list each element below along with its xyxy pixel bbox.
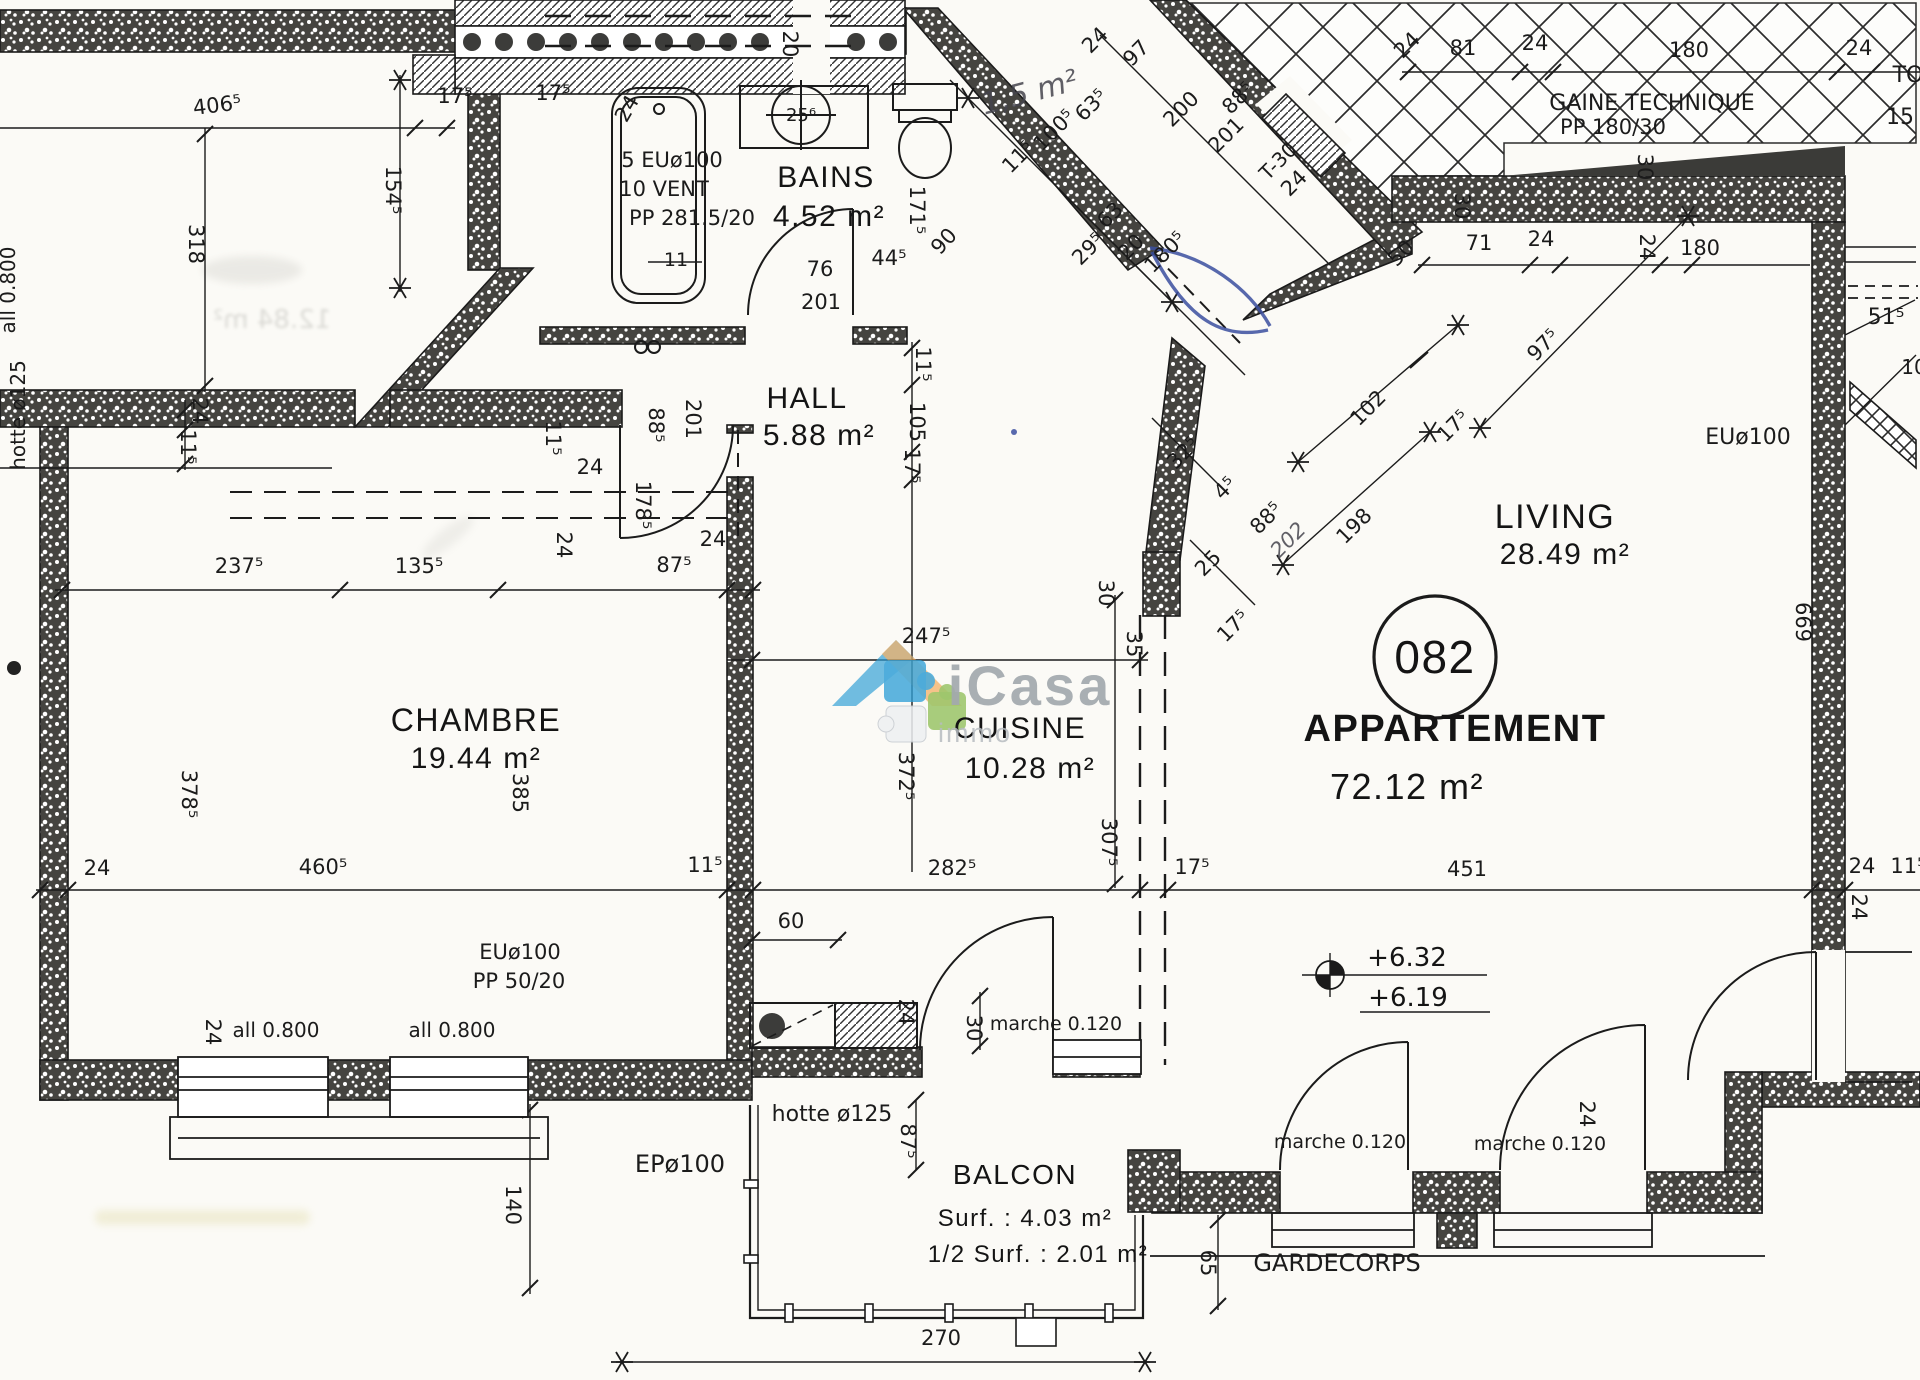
shaft-note: PP 281.5/20 [629, 206, 755, 230]
sill-height-label: all 0.800 [0, 247, 20, 334]
room-label-balcon: BALCON [953, 1159, 1077, 1190]
apartment-area: 72.12 m² [1330, 766, 1484, 807]
dimension-label: 24 [1849, 854, 1876, 878]
level-marker [1316, 961, 1344, 989]
watermark-suffix: immo [938, 718, 1012, 748]
dimension-label: 180 [1680, 236, 1720, 260]
dimension-label: 24 [1846, 36, 1873, 60]
dimension-label: 11 [664, 249, 688, 271]
room-label-hall: HALL [766, 382, 847, 415]
rainwater-pipe-label: EPø100 [635, 1150, 725, 1178]
dimension-label: 97⁵ [1522, 324, 1564, 366]
balcony-step [1016, 1318, 1056, 1346]
dimension-label: 97 [1118, 35, 1154, 71]
clipped-text: TO [1892, 63, 1920, 88]
pen-annotation-entry-door [1011, 248, 1270, 435]
dimension-label: 282⁵ [928, 856, 977, 880]
dimension-label: 44⁵ [871, 246, 906, 270]
dimension-label: 24 [84, 856, 111, 880]
dimension-label: 140 [501, 1185, 525, 1225]
drain-label: EUø100 [1705, 425, 1790, 450]
room-label-living: LIVING [1495, 498, 1615, 536]
dimension-label: 24 [1575, 1101, 1599, 1128]
dimension-label: 90 [926, 223, 962, 259]
dimension-label: 30 [1094, 580, 1118, 607]
step-label: marche 0.120 [1474, 1133, 1606, 1155]
dimension-label: 87⁵ [656, 553, 691, 577]
door-living-east [1688, 952, 1816, 1080]
step-label: marche 0.120 [1274, 1131, 1406, 1153]
dimension-label: 17⁵ [900, 448, 924, 483]
clipped-text: 15 [1886, 105, 1914, 130]
dimension-label: 198 [1331, 503, 1376, 548]
dimension-label: 4⁵ [1209, 472, 1241, 504]
dimension-label: 178⁵ [631, 481, 655, 530]
dimension-label: 17⁵ [1174, 855, 1209, 879]
dimension-label: 11⁵ [1890, 854, 1920, 878]
dimension-label: 451 [1447, 857, 1487, 881]
dimension-label: 460⁵ [299, 855, 348, 879]
doors [620, 209, 1816, 1170]
dimension-label: 171⁵ [905, 186, 929, 235]
dimension-label: 24 [552, 532, 576, 559]
shaft-label: PP 50/20 [473, 969, 566, 993]
dimension-label: 372⁵ [894, 752, 918, 801]
apartment-label: APPARTEMENT [1304, 708, 1607, 750]
dimension-label: 20 [778, 31, 802, 58]
dimension-label: 24 [1077, 22, 1113, 58]
dimension-label: 247⁵ [902, 624, 951, 648]
watermark-brand: iCasa [948, 654, 1112, 717]
level-lower: +6.19 [1368, 983, 1448, 1013]
clipped-dimension: 10 [1901, 355, 1920, 379]
dimension-label: 135⁵ [395, 554, 444, 578]
dimension-label: 669 [1791, 602, 1815, 642]
room-area-half-balcon: 1/2 Surf. : 2.01 m² [928, 1241, 1149, 1268]
sill-height-label: all 0.800 [409, 1018, 496, 1042]
room-area-hall: 5.88 m² [763, 419, 875, 452]
dimension-label: 406⁵ [192, 90, 243, 120]
room-area-chambre: 19.44 m² [411, 742, 541, 775]
dimension-label: 30 [1450, 193, 1474, 220]
dimension-label: 24 [188, 398, 212, 425]
dimension-label: 102 [1345, 385, 1390, 430]
dimension-label: 11⁵ [911, 346, 935, 381]
gaine-technique-label: GAINE TECHNIQUE [1549, 91, 1754, 116]
gaine-solid-wedge [1502, 146, 1845, 176]
dimension-label: 11⁵ [687, 853, 722, 877]
guardrail-label: GARDECORPS [1253, 1249, 1420, 1277]
level-upper: +6.32 [1367, 943, 1447, 973]
dimension-label: 30 [962, 1015, 986, 1042]
hood-duct-label: hotte ø125 [6, 360, 30, 470]
dimension-label: 11⁵ [176, 429, 200, 464]
dimension-label: 154⁵ [381, 166, 405, 215]
dimension-label: 17⁵ [1432, 405, 1474, 447]
floorplan-sheet: Plan d'étage — Appartement 082 [0, 0, 1920, 1380]
apartment-number: 082 [1394, 631, 1475, 683]
bathtub-drain [654, 104, 664, 114]
dimension-label: 24 [894, 999, 918, 1026]
dimension-label: 35 [1122, 631, 1146, 658]
dimension-label: 270 [921, 1326, 961, 1350]
dimension-label: 180 [1669, 38, 1709, 62]
dimension-label: 88⁵ [644, 407, 668, 442]
dimension-label: 60 [778, 909, 805, 933]
dimension-label: 378⁵ [177, 770, 201, 819]
sill-height-label: all 0.800 [233, 1018, 320, 1042]
dimension-label: 385 [508, 773, 532, 813]
duct-note: 5 EUø100 [621, 148, 723, 172]
dimension-label: 318 [184, 224, 208, 264]
bleed-through-text: 12.84 m² [213, 305, 331, 335]
dimension-label: 17⁵ [1212, 605, 1254, 647]
dimension-label: 200 [1158, 86, 1203, 131]
window-chambre-2 [390, 1057, 528, 1117]
dimension-label: 71 [1466, 231, 1493, 255]
floorplan-drawing: BAINS4.52 m²HALL5.88 m²CHAMBRE19.44 m²CU… [0, 0, 1920, 1380]
dimension-label: 24 [700, 527, 727, 551]
dimension-label: 105 [905, 402, 929, 442]
dimension-label: 201 [681, 399, 705, 439]
room-area-balcon: Surf. : 4.03 m² [938, 1205, 1113, 1232]
room-label-bains: BAINS [777, 161, 875, 194]
room-area-living: 28.49 m² [1500, 538, 1630, 571]
hood-duct-label: hotte ø125 [772, 1102, 893, 1127]
dimension-label: 87⁵ [896, 1123, 920, 1158]
dimension-label: 25 [1190, 545, 1226, 581]
dimension-label: 76 [807, 257, 834, 281]
dimension-label: 24 [1635, 234, 1659, 261]
wall-dot [7, 661, 21, 675]
dimension-label: 81 [1450, 36, 1477, 60]
dimension-label: 24 [1522, 31, 1549, 55]
dimension-label: 65 [1196, 1250, 1220, 1277]
window-chambre-1 [178, 1057, 328, 1117]
dimension-label: 17⁵ [437, 84, 472, 108]
dimension-label: 24 [201, 1019, 225, 1046]
basin-diameter: 25⁶ [786, 105, 816, 126]
room-area-bains: 4.52 m² [773, 200, 885, 233]
dimension-label: 24 [577, 455, 604, 479]
gaine-technique-size: PP 180/30 [1560, 115, 1666, 139]
dimension-label: 30 [1633, 154, 1657, 181]
shaft-hatch-strip [1850, 382, 1916, 468]
dimension-label: 237⁵ [215, 554, 264, 578]
drain-label: EUø100 [479, 940, 561, 964]
room-label-chambre: CHAMBRE [391, 702, 562, 738]
wc-bowl [899, 118, 951, 178]
dimension-label: 11⁵ [541, 420, 565, 455]
dimension-label: 24 [1528, 227, 1555, 251]
dimension-label: 17⁵ [535, 81, 570, 105]
dimension-label: 307⁵ [1097, 818, 1121, 867]
step-label: marche 0.120 [990, 1013, 1122, 1035]
dimension-label: 24 [1847, 894, 1871, 921]
room-area-cuisine: 10.28 m² [965, 752, 1095, 785]
dimension-label: 201 [1203, 112, 1248, 157]
dimension-label: 51⁵ [1868, 305, 1905, 330]
vent-note: 10 VENT [619, 177, 709, 201]
dimension-label: 201 [801, 290, 841, 314]
